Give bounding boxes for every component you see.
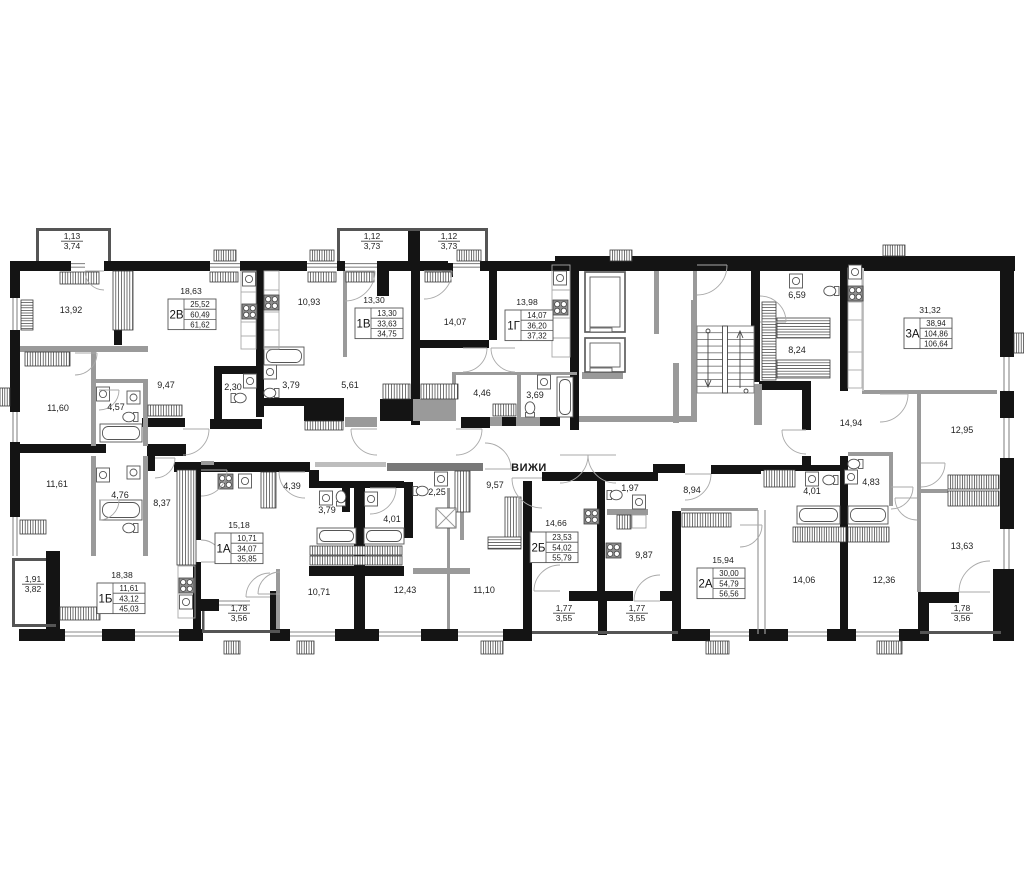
- svg-text:18,38: 18,38: [111, 570, 133, 580]
- svg-text:1,77: 1,77: [556, 603, 573, 613]
- svg-text:25,52: 25,52: [190, 300, 210, 309]
- svg-text:14,06: 14,06: [793, 575, 816, 585]
- svg-text:5,61: 5,61: [341, 380, 359, 390]
- svg-text:ВИЖИ: ВИЖИ: [511, 462, 547, 474]
- svg-text:9,87: 9,87: [635, 550, 653, 560]
- svg-text:14,07: 14,07: [444, 317, 467, 327]
- svg-text:43,12: 43,12: [119, 594, 139, 603]
- svg-text:3,56: 3,56: [231, 613, 248, 623]
- svg-text:2,25: 2,25: [428, 487, 446, 497]
- svg-text:13,30: 13,30: [363, 295, 385, 305]
- svg-text:3,79: 3,79: [282, 380, 300, 390]
- svg-text:9,57: 9,57: [486, 480, 504, 490]
- svg-text:11,10: 11,10: [473, 585, 495, 595]
- svg-text:3,73: 3,73: [364, 241, 381, 251]
- svg-text:1,78: 1,78: [231, 603, 248, 613]
- svg-text:1,78: 1,78: [954, 603, 971, 613]
- svg-text:4,83: 4,83: [862, 477, 880, 487]
- svg-text:10,71: 10,71: [237, 534, 257, 543]
- svg-text:8,24: 8,24: [788, 345, 806, 355]
- svg-text:1,13: 1,13: [64, 231, 81, 241]
- svg-text:35,85: 35,85: [237, 555, 257, 564]
- svg-text:6,59: 6,59: [788, 290, 806, 300]
- svg-text:3,55: 3,55: [556, 613, 573, 623]
- svg-text:15,18: 15,18: [228, 520, 250, 530]
- svg-text:12,36: 12,36: [873, 575, 896, 585]
- svg-text:1,97: 1,97: [621, 483, 639, 493]
- svg-text:4,01: 4,01: [383, 514, 401, 524]
- svg-text:13,98: 13,98: [516, 297, 538, 307]
- svg-text:1Б: 1Б: [99, 594, 113, 606]
- svg-text:4,76: 4,76: [111, 490, 129, 500]
- svg-text:2Б: 2Б: [532, 543, 546, 555]
- svg-text:60,49: 60,49: [190, 310, 210, 319]
- svg-text:34,75: 34,75: [377, 330, 397, 339]
- svg-text:3,69: 3,69: [526, 390, 544, 400]
- svg-text:11,61: 11,61: [120, 584, 139, 593]
- svg-text:11,61: 11,61: [46, 479, 68, 489]
- svg-text:4,57: 4,57: [107, 402, 125, 412]
- svg-text:12,95: 12,95: [951, 425, 974, 435]
- svg-text:15,94: 15,94: [712, 555, 734, 565]
- svg-text:3,56: 3,56: [954, 613, 971, 623]
- svg-text:12,43: 12,43: [394, 585, 417, 595]
- svg-text:61,62: 61,62: [190, 321, 210, 330]
- svg-text:4,01: 4,01: [803, 486, 821, 496]
- svg-text:13,63: 13,63: [951, 541, 974, 551]
- svg-text:14,94: 14,94: [840, 418, 863, 428]
- svg-text:1,12: 1,12: [364, 231, 381, 241]
- svg-text:11,60: 11,60: [47, 403, 69, 413]
- svg-text:2В: 2В: [169, 310, 183, 322]
- svg-text:14,07: 14,07: [527, 311, 547, 320]
- svg-text:3,73: 3,73: [441, 241, 458, 251]
- svg-text:8,37: 8,37: [153, 498, 171, 508]
- svg-text:13,92: 13,92: [60, 305, 83, 315]
- svg-text:13,30: 13,30: [377, 309, 397, 318]
- svg-text:1В: 1В: [356, 319, 370, 331]
- svg-text:55,79: 55,79: [552, 554, 572, 563]
- svg-text:3,74: 3,74: [64, 241, 81, 251]
- svg-text:34,07: 34,07: [237, 544, 257, 553]
- svg-text:37,32: 37,32: [527, 332, 547, 341]
- svg-text:3,55: 3,55: [629, 613, 646, 623]
- svg-text:1,77: 1,77: [629, 603, 646, 613]
- svg-text:4,39: 4,39: [283, 481, 301, 491]
- svg-text:54,02: 54,02: [552, 543, 572, 552]
- svg-text:2А: 2А: [698, 579, 712, 591]
- svg-text:36,20: 36,20: [527, 321, 547, 330]
- svg-text:2,30: 2,30: [224, 382, 242, 392]
- svg-text:14,66: 14,66: [545, 518, 567, 528]
- svg-text:31,32: 31,32: [919, 305, 941, 315]
- svg-text:10,71: 10,71: [308, 587, 331, 597]
- svg-text:56,56: 56,56: [719, 590, 739, 599]
- svg-text:10,93: 10,93: [298, 297, 321, 307]
- svg-text:38,94: 38,94: [926, 319, 946, 328]
- svg-text:54,79: 54,79: [719, 579, 739, 588]
- svg-text:18,63: 18,63: [180, 286, 202, 296]
- svg-text:104,86: 104,86: [924, 329, 948, 338]
- svg-text:3,82: 3,82: [25, 584, 42, 594]
- svg-text:23,53: 23,53: [552, 533, 572, 542]
- svg-text:1,91: 1,91: [25, 574, 42, 584]
- svg-text:45,03: 45,03: [119, 605, 139, 614]
- svg-text:1Г: 1Г: [507, 321, 520, 333]
- svg-text:33,63: 33,63: [377, 319, 397, 328]
- svg-text:3А: 3А: [905, 329, 919, 341]
- svg-text:1А: 1А: [216, 544, 230, 556]
- svg-text:3,79: 3,79: [318, 505, 336, 515]
- svg-text:8,94: 8,94: [683, 485, 701, 495]
- svg-text:9,47: 9,47: [157, 380, 175, 390]
- svg-text:30,00: 30,00: [719, 569, 739, 578]
- svg-text:4,46: 4,46: [473, 388, 491, 398]
- svg-text:106,64: 106,64: [924, 340, 949, 349]
- svg-text:1,12: 1,12: [441, 231, 458, 241]
